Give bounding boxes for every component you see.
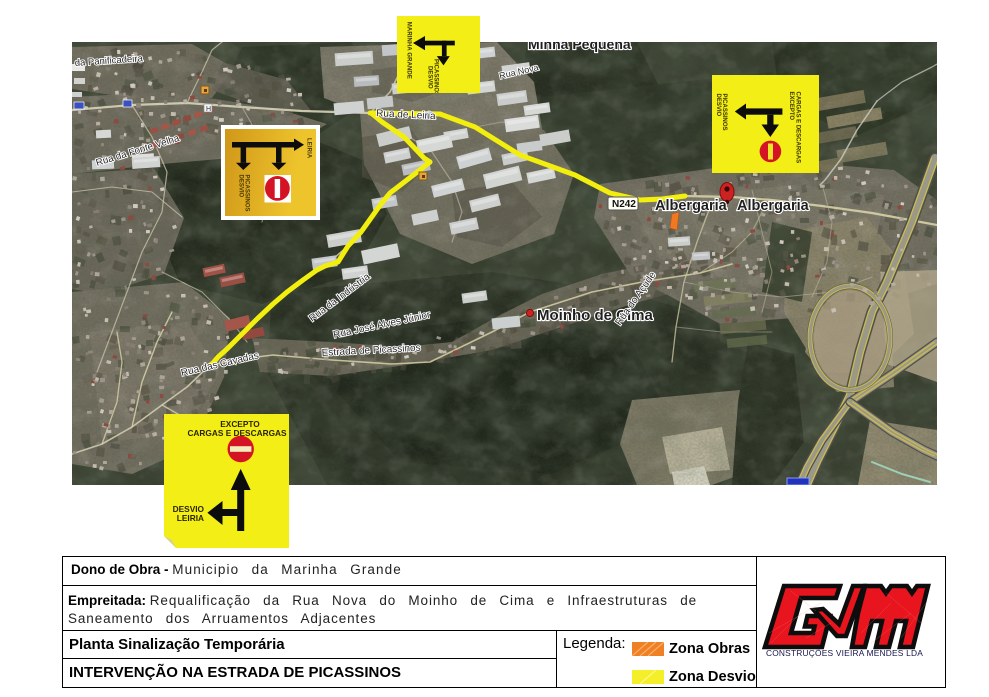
svg-text:H: H [206, 106, 211, 113]
svg-text:PICASSINOS: PICASSINOS [721, 94, 727, 131]
svg-text:DESVIO: DESVIO [426, 66, 432, 89]
svg-text:CARGAS E DESCARGAS: CARGAS E DESCARGAS [795, 92, 801, 164]
svg-text:EXCEPTO: EXCEPTO [788, 92, 794, 121]
svg-text:Minha Pequena: Minha Pequena [528, 42, 631, 52]
svg-text:LEIRIA: LEIRIA [177, 513, 204, 523]
svg-text:Albergaria: Albergaria [737, 198, 810, 214]
svg-text:DESVIO: DESVIO [715, 94, 721, 117]
svg-text:Moinho de Cima: Moinho de Cima [537, 307, 653, 324]
svg-text:PICASSINOS: PICASSINOS [244, 175, 250, 212]
svg-text:PICASSINOS: PICASSINOS [433, 59, 439, 93]
svg-text:MARINHA GRANDE: MARINHA GRANDE [405, 22, 411, 79]
svg-text:N242: N242 [612, 199, 636, 210]
svg-text:DESVIO: DESVIO [238, 175, 244, 198]
svg-text:Albergaria: Albergaria [655, 198, 728, 214]
svg-text:LEIRIA: LEIRIA [306, 138, 312, 159]
